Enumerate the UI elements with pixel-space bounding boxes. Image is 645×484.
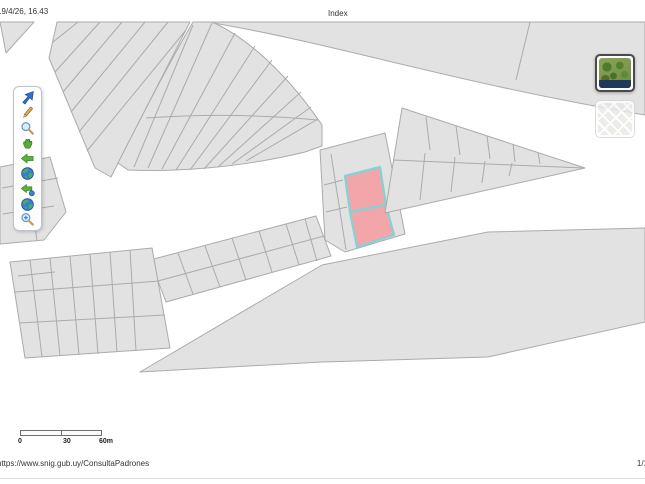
magnifier-plus-icon (20, 212, 35, 227)
magnifier-icon (20, 121, 35, 136)
scale-label-30: 30 (63, 438, 71, 445)
map-viewport[interactable] (0, 20, 645, 420)
parcel-block (385, 108, 585, 213)
scale-bar-tick (61, 431, 62, 435)
pan-tool-button[interactable] (19, 136, 36, 151)
parcel-block (10, 248, 170, 358)
footer-url: https://www.snig.gub.uy/ConsultaPadrones (0, 459, 149, 468)
satellite-image-icon (599, 58, 631, 88)
scale-bar-rule (20, 430, 102, 436)
page-bottom-divider (0, 478, 645, 479)
page-title: Index (328, 9, 348, 18)
world-view-tool-button[interactable] (19, 197, 36, 212)
zoom-in-tool-button[interactable] (19, 212, 36, 227)
map-canvas[interactable] (0, 20, 645, 420)
globe-icon (20, 166, 35, 181)
footer-page-number: 1/1 (637, 459, 645, 468)
streets-map-icon (598, 103, 632, 135)
full-extent-tool-button[interactable] (19, 166, 36, 181)
arrow-left-icon (20, 151, 35, 166)
basemap-streets-thumbnail[interactable] (595, 100, 635, 138)
zoom-box-tool-button[interactable] (19, 121, 36, 136)
basemap-selector (595, 54, 635, 138)
measure-tool-button[interactable] (19, 105, 36, 120)
scale-bar: 0 30 60m (17, 429, 137, 451)
map-toolbar (13, 86, 42, 231)
globe-icon (20, 197, 35, 212)
previous-extent-tool-button[interactable] (19, 151, 36, 166)
scale-label-0: 0 (18, 438, 22, 445)
extent-history-tool-button[interactable] (19, 182, 36, 197)
cursor-icon (20, 90, 35, 105)
pencil-icon (20, 105, 35, 120)
basemap-satellite-thumbnail[interactable] (595, 54, 635, 92)
select-tool-button[interactable] (19, 90, 36, 105)
header-datetime: 19/4/26, 16.43 (0, 7, 48, 16)
hand-icon (20, 136, 35, 151)
arrow-left-globe-icon (20, 182, 35, 197)
parcel-block (0, 22, 34, 53)
scale-label-60m: 60m (99, 438, 113, 445)
